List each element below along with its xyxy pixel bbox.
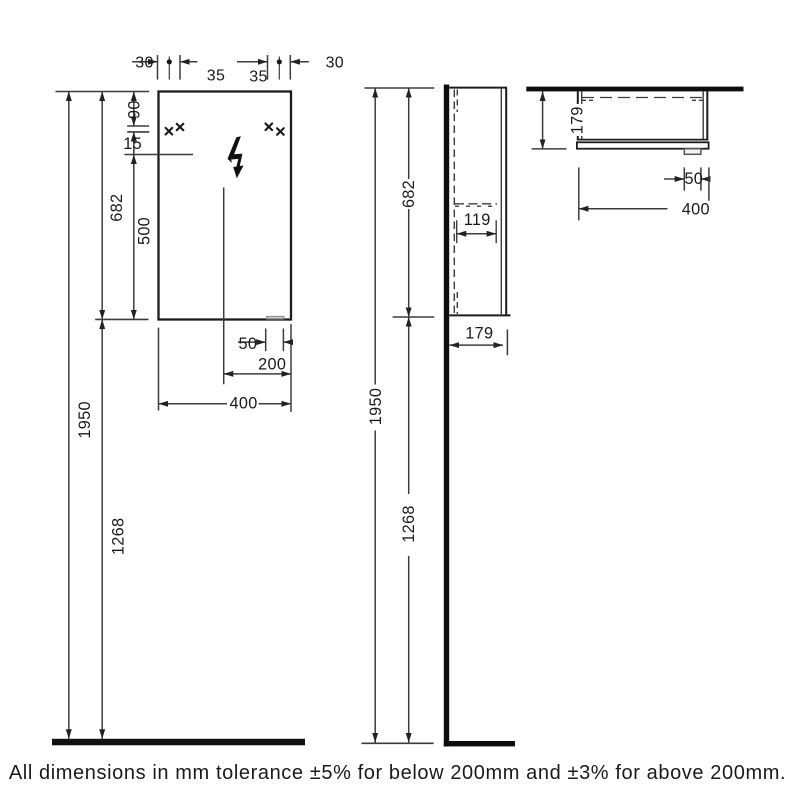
svg-text:179: 179 bbox=[465, 325, 493, 343]
svg-text:682: 682 bbox=[400, 180, 418, 208]
svg-text:400: 400 bbox=[682, 200, 710, 218]
svg-text:400: 400 bbox=[230, 394, 258, 412]
svg-text:30: 30 bbox=[326, 55, 344, 72]
svg-text:30: 30 bbox=[135, 55, 153, 72]
svg-text:All dimensions in mm tolerance: All dimensions in mm tolerance ±5% for b… bbox=[9, 762, 786, 784]
svg-text:500: 500 bbox=[135, 217, 153, 245]
svg-text:35: 35 bbox=[249, 69, 267, 86]
svg-text:1268: 1268 bbox=[400, 505, 418, 542]
svg-text:50: 50 bbox=[239, 335, 258, 353]
svg-text:35: 35 bbox=[207, 68, 225, 85]
svg-text:1950: 1950 bbox=[367, 388, 385, 425]
svg-text:15: 15 bbox=[123, 135, 142, 153]
svg-text:90: 90 bbox=[125, 100, 143, 119]
svg-text:1950: 1950 bbox=[76, 401, 94, 438]
svg-text:682: 682 bbox=[108, 194, 126, 222]
svg-text:1268: 1268 bbox=[109, 518, 127, 555]
svg-text:119: 119 bbox=[464, 211, 491, 229]
svg-text:179: 179 bbox=[569, 106, 587, 134]
svg-text:200: 200 bbox=[258, 356, 286, 374]
svg-text:50: 50 bbox=[684, 170, 703, 188]
